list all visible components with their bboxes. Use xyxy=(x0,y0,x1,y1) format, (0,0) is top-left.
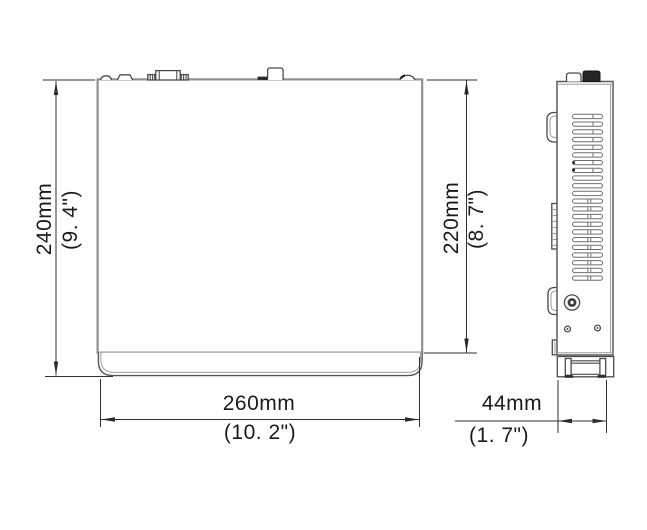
top-connector-light xyxy=(567,73,582,82)
arrow-down xyxy=(464,339,468,353)
depth-inch-label: (1. 7") xyxy=(469,424,529,448)
top-view-body xyxy=(98,79,423,352)
round-connector-bump xyxy=(101,76,112,80)
arrow-right xyxy=(593,419,607,423)
arrow-up xyxy=(54,81,58,95)
depth-mm-label: 44mm xyxy=(482,392,542,416)
power-connector xyxy=(268,68,284,80)
arrow-left xyxy=(558,419,572,423)
body-height-inch-label: (8. 7") xyxy=(465,189,489,249)
arrow-right xyxy=(405,417,419,421)
top-connector-dark xyxy=(583,71,600,82)
vga-screw-left xyxy=(148,75,155,80)
overall-height-inch-label: (9. 4") xyxy=(59,190,83,250)
vga-screw-right xyxy=(181,75,188,80)
width-inch-label: (10. 2") xyxy=(224,421,296,445)
foot-bracket xyxy=(557,357,613,378)
power-connector-step xyxy=(258,77,268,80)
arrow-down xyxy=(54,362,58,376)
overall-height-mm-label: 240mm xyxy=(33,183,57,256)
foot-pad-right xyxy=(598,375,606,378)
trapezoid-connector-bump xyxy=(118,75,133,80)
dimension-drawing: 240mm (9. 4") 220mm (8. 7") 260mm (10. 2… xyxy=(0,0,647,530)
arrow-left xyxy=(101,417,115,421)
drawing-canvas xyxy=(0,0,647,530)
side-view xyxy=(547,71,614,378)
width-mm-label: 260mm xyxy=(223,392,296,416)
arrow-up xyxy=(464,81,468,95)
body-height-mm-label: 220mm xyxy=(440,182,464,255)
top-view xyxy=(98,68,423,376)
foot-pad-left xyxy=(565,375,573,378)
